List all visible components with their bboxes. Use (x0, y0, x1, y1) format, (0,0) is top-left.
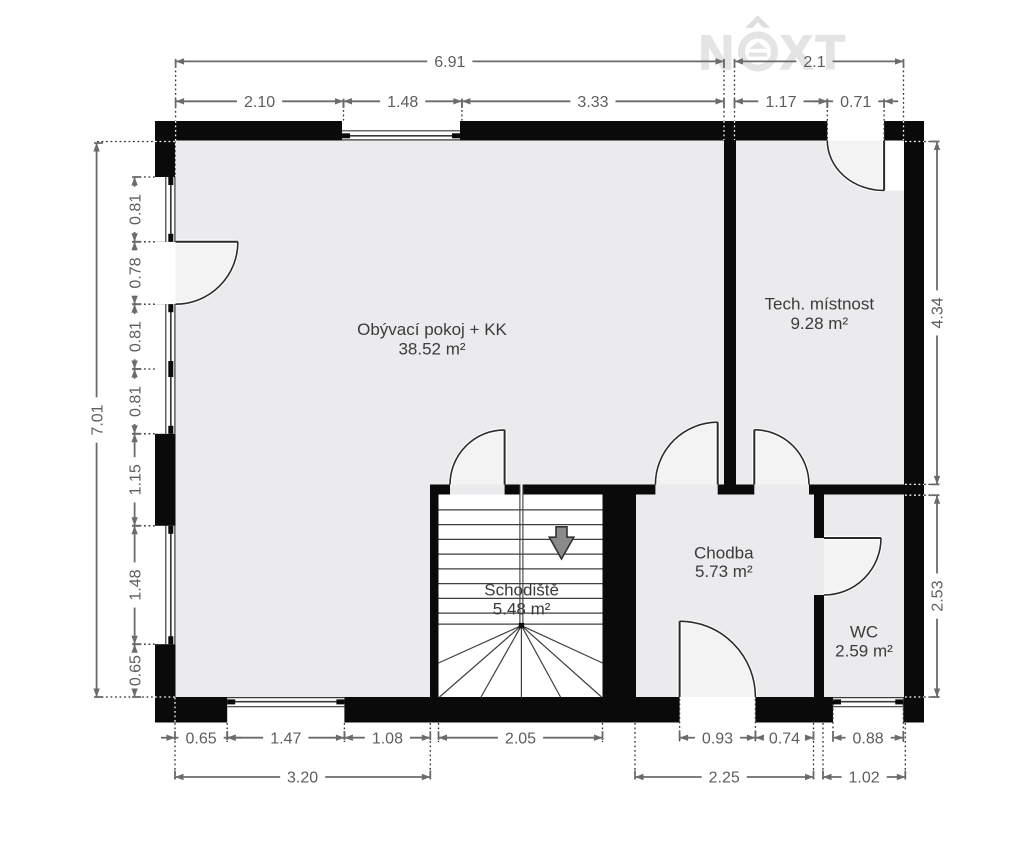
svg-text:0.81: 0.81 (127, 194, 144, 225)
svg-text:3.20: 3.20 (287, 770, 318, 787)
svg-text:0.78: 0.78 (127, 257, 144, 288)
svg-text:2.1: 2.1 (803, 54, 825, 71)
svg-text:2.10: 2.10 (244, 94, 275, 111)
svg-text:0.93: 0.93 (702, 730, 733, 747)
svg-text:0.71: 0.71 (840, 94, 871, 111)
svg-text:1.15: 1.15 (127, 464, 144, 495)
svg-text:3.33: 3.33 (577, 94, 608, 111)
svg-text:5.73 m²: 5.73 m² (695, 562, 753, 581)
svg-text:Schodiště: Schodiště (484, 581, 559, 600)
svg-text:N: N (699, 26, 734, 80)
svg-text:0.65: 0.65 (127, 655, 144, 686)
svg-text:1.47: 1.47 (270, 730, 301, 747)
svg-text:0.88: 0.88 (853, 730, 884, 747)
svg-text:4.34: 4.34 (930, 297, 947, 328)
svg-text:1.48: 1.48 (387, 94, 418, 111)
svg-text:2.05: 2.05 (505, 730, 536, 747)
svg-text:1.02: 1.02 (849, 770, 880, 787)
svg-text:Chodba: Chodba (694, 544, 754, 563)
svg-text:1.17: 1.17 (765, 94, 796, 111)
svg-text:0.74: 0.74 (769, 730, 800, 747)
svg-text:X: X (780, 26, 812, 80)
svg-text:1.48: 1.48 (127, 569, 144, 600)
svg-text:7.01: 7.01 (89, 404, 106, 435)
svg-text:0.65: 0.65 (186, 730, 217, 747)
svg-text:2.25: 2.25 (709, 770, 740, 787)
svg-text:0.81: 0.81 (127, 386, 144, 417)
svg-text:WC: WC (850, 622, 878, 641)
svg-text:38.52 m²: 38.52 m² (398, 340, 465, 359)
svg-text:5.48 m²: 5.48 m² (493, 600, 551, 619)
svg-text:2.53: 2.53 (930, 580, 947, 611)
svg-text:Obývací pokoj + KK: Obývací pokoj + KK (357, 320, 507, 339)
svg-text:6.91: 6.91 (434, 54, 465, 71)
svg-text:1.08: 1.08 (372, 730, 403, 747)
svg-text:9.28 m²: 9.28 m² (790, 314, 848, 333)
svg-text:2.59 m²: 2.59 m² (835, 642, 893, 661)
svg-text:Tech. místnost: Tech. místnost (764, 295, 874, 314)
svg-text:0.81: 0.81 (127, 321, 144, 352)
svg-text:T: T (815, 26, 845, 80)
